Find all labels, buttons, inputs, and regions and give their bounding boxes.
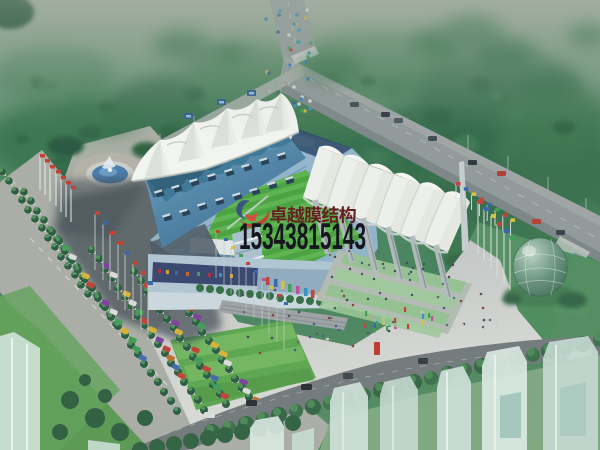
svg-text:15343815143: 15343815143 [239,216,366,257]
